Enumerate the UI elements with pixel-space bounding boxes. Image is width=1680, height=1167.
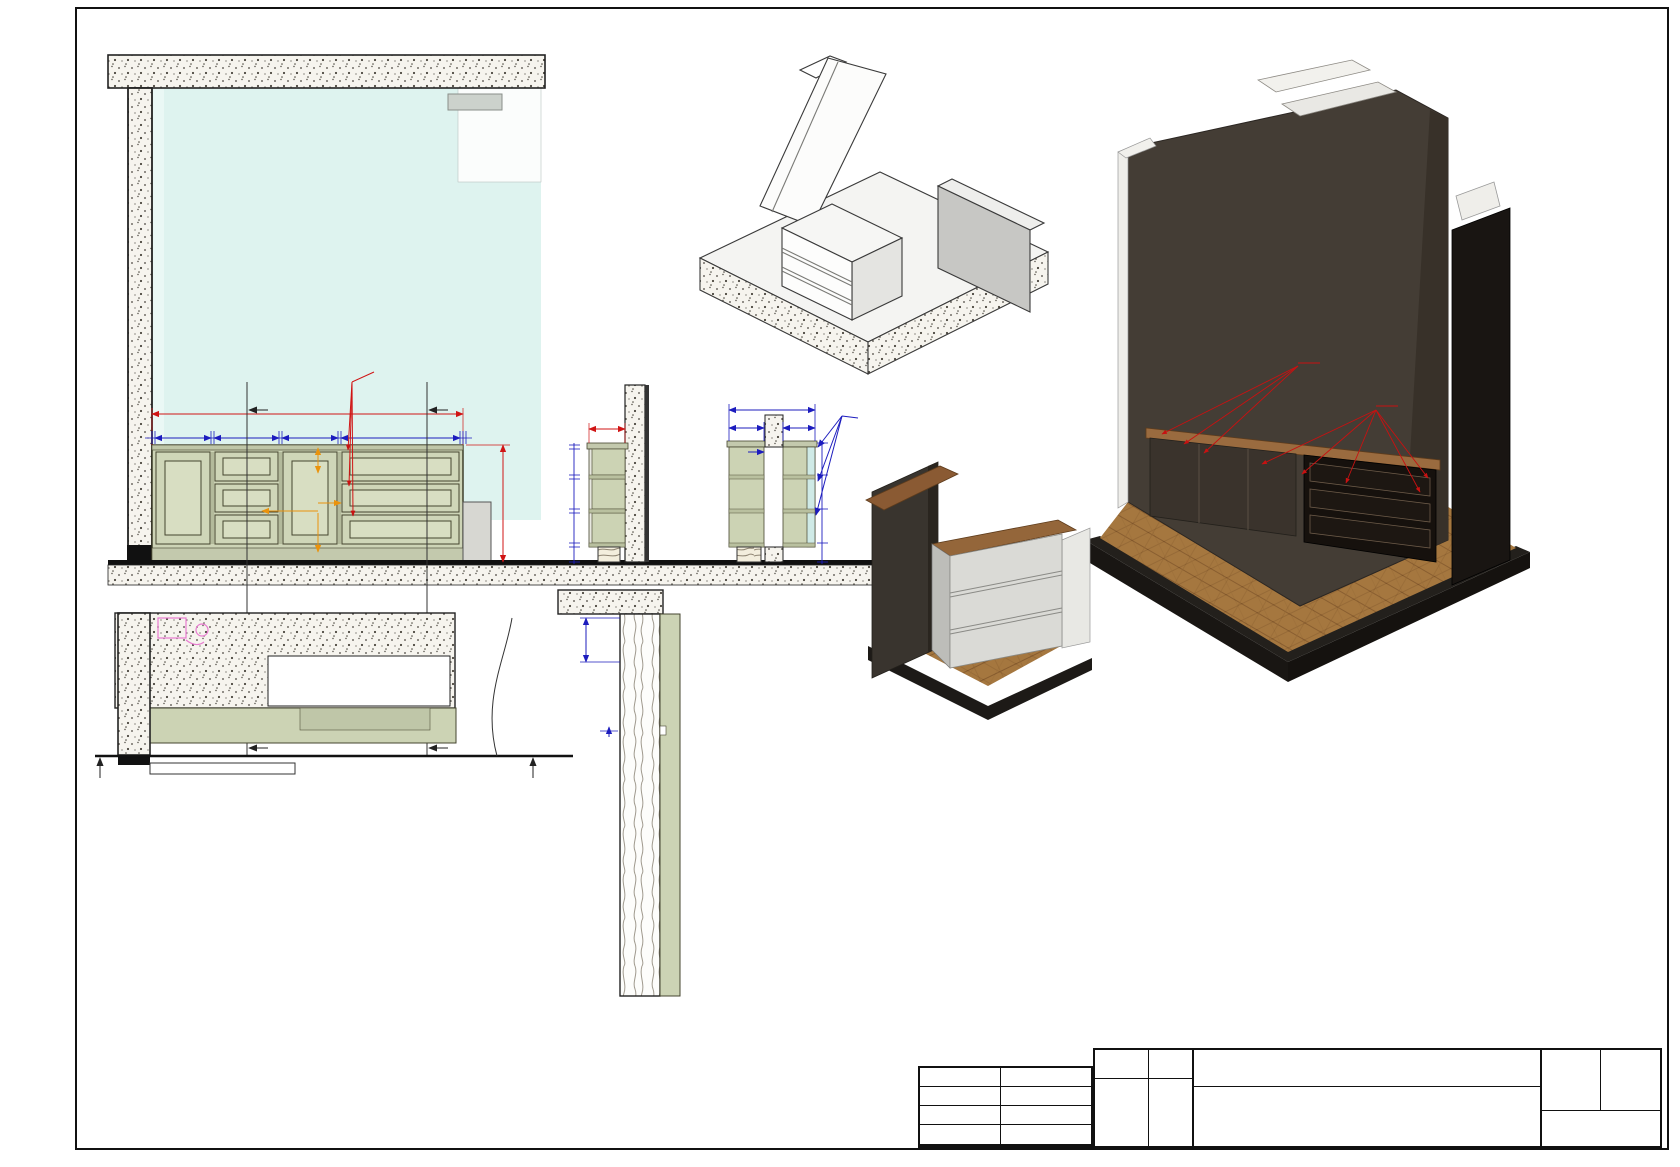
break-line — [492, 618, 512, 756]
render-back-view — [866, 462, 1092, 720]
cabinet-front — [152, 445, 463, 562]
section-a-view — [569, 385, 649, 564]
facade-section-view — [558, 590, 680, 996]
signatures-table — [918, 1066, 1093, 1146]
drawing-sheet — [0, 0, 1680, 1167]
ceiling-band — [108, 55, 545, 88]
drawing-canvas — [0, 0, 1680, 1167]
plan-view — [95, 613, 573, 778]
dark-column — [1452, 208, 1510, 585]
floor-line — [108, 560, 908, 565]
back-cabinet — [932, 520, 1076, 668]
facade-dims — [580, 618, 620, 737]
curtain-box — [448, 94, 502, 110]
render-front-view — [1085, 60, 1530, 682]
wall-column — [128, 88, 152, 562]
isometric-view — [700, 56, 1048, 374]
floor-band — [108, 565, 908, 585]
section-b-view — [727, 404, 858, 564]
wall-return — [463, 502, 491, 562]
ceiling-beam-1 — [1258, 60, 1370, 92]
